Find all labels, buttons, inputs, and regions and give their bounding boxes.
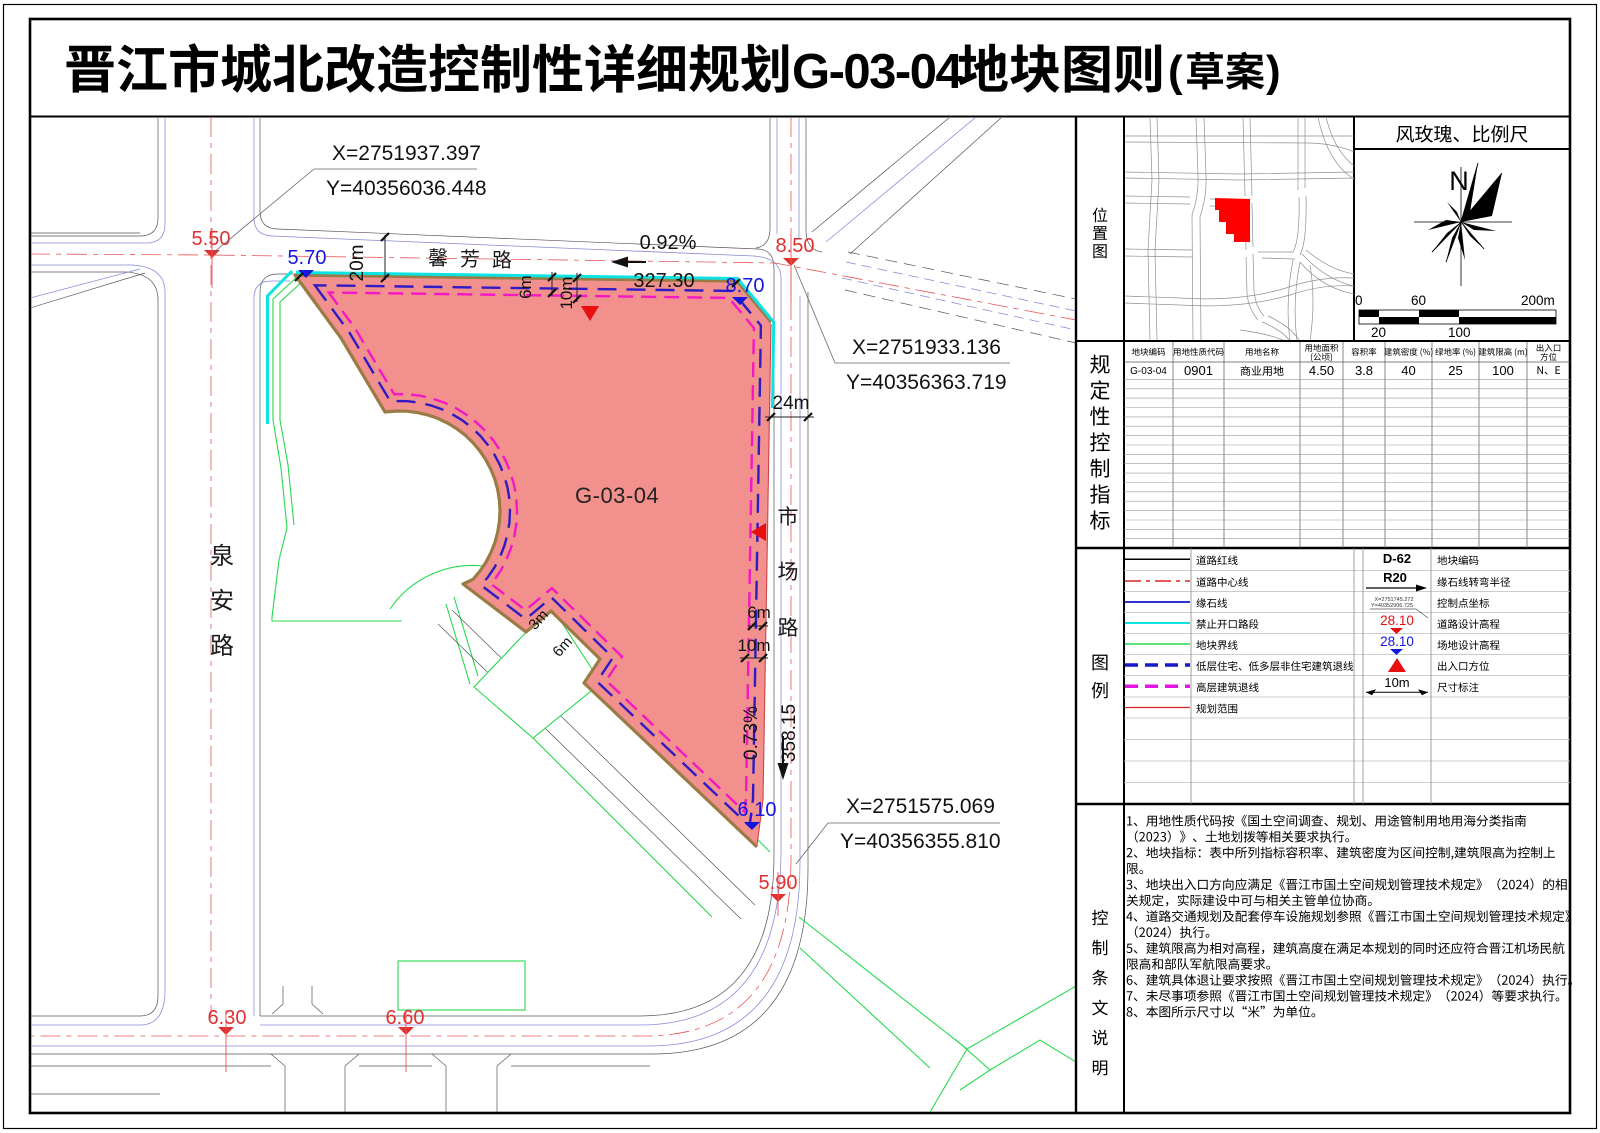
svg-text:Y=40352906.725: Y=40352906.725 bbox=[1371, 603, 1413, 609]
svg-text:Y=40356355.810: Y=40356355.810 bbox=[840, 830, 1001, 853]
svg-text:Y=40356363.719: Y=40356363.719 bbox=[846, 371, 1007, 394]
svg-text:20: 20 bbox=[1371, 325, 1386, 340]
svg-text:10m: 10m bbox=[737, 636, 770, 655]
svg-text:5.70: 5.70 bbox=[288, 247, 327, 269]
svg-text:8.70: 8.70 bbox=[726, 275, 765, 297]
svg-text:R20: R20 bbox=[1383, 570, 1407, 585]
svg-text:6.30: 6.30 bbox=[208, 1007, 247, 1029]
svg-text:25: 25 bbox=[1448, 363, 1462, 378]
svg-text:X=2751933.136: X=2751933.136 bbox=[852, 336, 1001, 359]
svg-text:8.50: 8.50 bbox=[776, 235, 815, 257]
svg-text:X=2751937.397: X=2751937.397 bbox=[332, 142, 481, 165]
svg-text:G-03-04: G-03-04 bbox=[792, 45, 963, 99]
svg-text:6m: 6m bbox=[516, 275, 535, 299]
svg-text:28.10: 28.10 bbox=[1380, 634, 1414, 649]
svg-text:20m: 20m bbox=[347, 245, 368, 282]
svg-text:5.50: 5.50 bbox=[192, 228, 231, 250]
svg-text:G-03-04: G-03-04 bbox=[1130, 366, 1167, 377]
svg-text:X=2751575.069: X=2751575.069 bbox=[846, 795, 995, 818]
svg-text:0: 0 bbox=[1355, 293, 1363, 308]
svg-text:3.8: 3.8 bbox=[1355, 363, 1373, 378]
svg-text:327.30: 327.30 bbox=[633, 270, 694, 292]
svg-text:G-03-04: G-03-04 bbox=[575, 483, 659, 508]
svg-text:0.92%: 0.92% bbox=[640, 232, 697, 254]
svg-text:0.73%: 0.73% bbox=[741, 706, 762, 760]
svg-text:100: 100 bbox=[1492, 363, 1514, 378]
svg-text:6.10: 6.10 bbox=[738, 799, 777, 821]
svg-text:N: N bbox=[1449, 166, 1469, 196]
svg-text:6.60: 6.60 bbox=[386, 1007, 425, 1029]
svg-text:4.50: 4.50 bbox=[1309, 363, 1334, 378]
svg-text:200m: 200m bbox=[1521, 293, 1555, 308]
svg-text:Y=40356036.448: Y=40356036.448 bbox=[326, 177, 487, 200]
svg-text:0901: 0901 bbox=[1184, 363, 1213, 378]
svg-text:(: ( bbox=[1168, 47, 1183, 96]
svg-text:60: 60 bbox=[1411, 293, 1426, 308]
svg-text:28.10: 28.10 bbox=[1380, 613, 1414, 628]
svg-text:): ) bbox=[1266, 47, 1281, 96]
svg-text:D-62: D-62 bbox=[1383, 551, 1411, 566]
svg-text:358.15: 358.15 bbox=[779, 704, 800, 762]
svg-text:6m: 6m bbox=[747, 603, 771, 622]
svg-text:40: 40 bbox=[1401, 363, 1415, 378]
svg-text:10m: 10m bbox=[1384, 675, 1409, 690]
svg-text:100: 100 bbox=[1448, 325, 1471, 340]
svg-text:24m: 24m bbox=[773, 393, 810, 414]
